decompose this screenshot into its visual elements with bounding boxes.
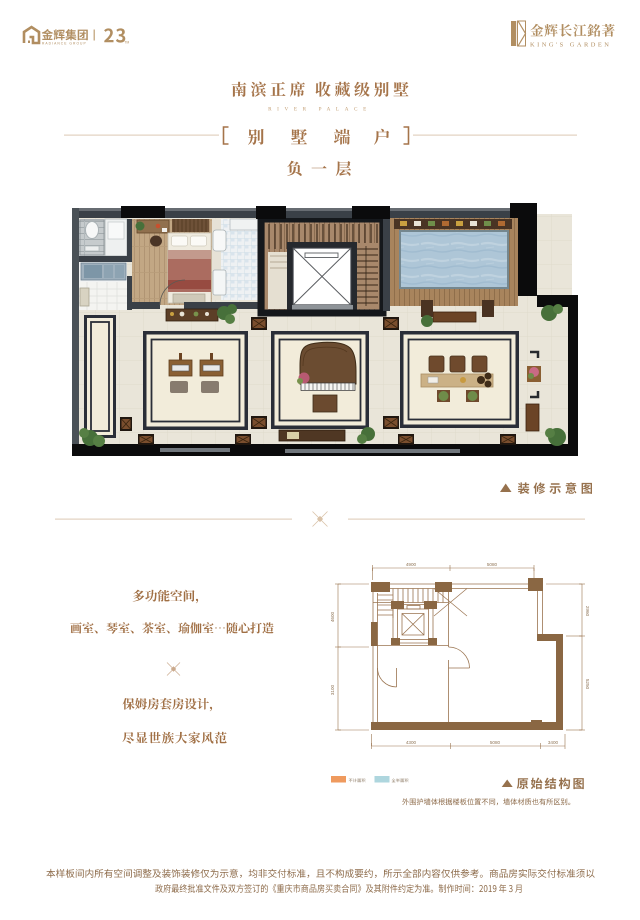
svg-text:5080: 5080 [487, 562, 498, 567]
svg-text:4600: 4600 [330, 611, 335, 622]
svg-text:5080: 5080 [490, 740, 501, 745]
svg-text:2960: 2960 [585, 606, 590, 617]
svg-text:4900: 4900 [406, 562, 417, 567]
svg-text:4300: 4300 [406, 740, 417, 745]
svg-text:3400: 3400 [548, 740, 559, 745]
svg-text:RIVER PALACE: RIVER PALACE [268, 107, 372, 113]
svg-text:TM: TM [125, 41, 130, 45]
svg-text:3100: 3100 [330, 684, 335, 695]
svg-text:KING'S GARDEN: KING'S GARDEN [530, 42, 611, 49]
svg-text:5250: 5250 [585, 679, 590, 690]
svg-text:RADIANCE GROUP: RADIANCE GROUP [42, 42, 87, 46]
